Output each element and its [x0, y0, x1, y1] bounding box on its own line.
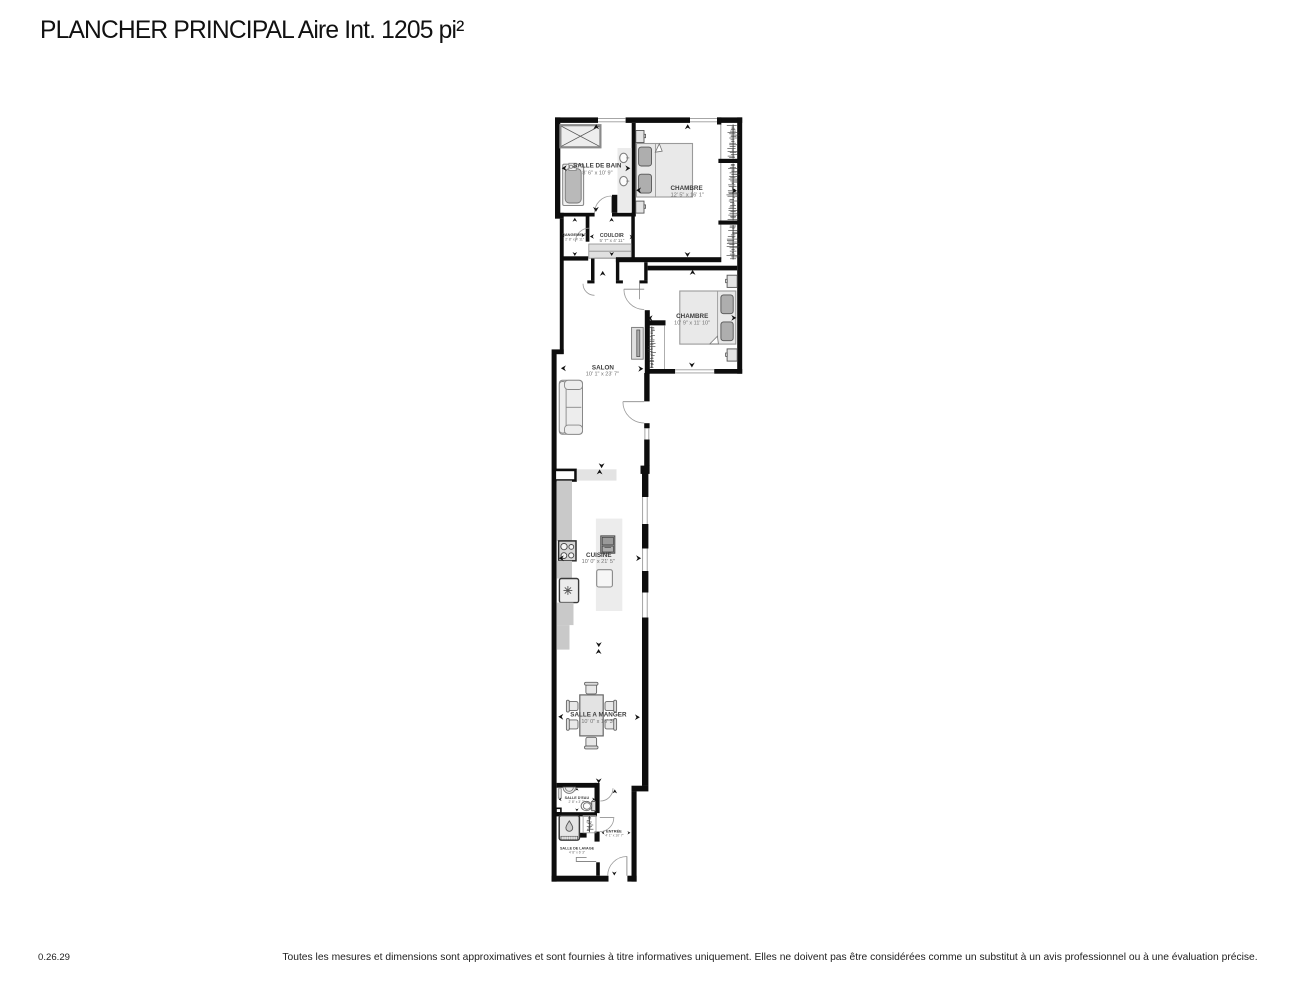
svg-text:5' 7" x 4' 11": 5' 7" x 4' 11" [599, 238, 624, 243]
svg-text:8' 6" x 10' 9": 8' 6" x 10' 9" [582, 171, 612, 177]
svg-text:SALON: SALON [592, 365, 614, 372]
svg-text:CHAMBRE: CHAMBRE [676, 313, 708, 320]
svg-text:CHAMBRE: CHAMBRE [671, 185, 703, 192]
svg-text:4' 1" x 10' 7": 4' 1" x 10' 7" [605, 833, 624, 837]
svg-text:SALLE A MANGER: SALLE A MANGER [570, 712, 627, 719]
svg-text:10' 1" x 23' 7": 10' 1" x 23' 7" [586, 372, 619, 378]
svg-text:SALLE DE BAIN: SALLE DE BAIN [573, 163, 622, 170]
svg-text:10' 0" x 21' 5": 10' 0" x 21' 5" [582, 559, 615, 565]
svg-text:CUISINE: CUISINE [586, 552, 612, 559]
svg-text:10' 0" x 16' 3": 10' 0" x 16' 3" [581, 719, 614, 725]
svg-text:2' 8" x 4' 11": 2' 8" x 4' 11" [565, 237, 585, 241]
svg-text:2' 8" x 3' 2": 2' 8" x 3' 2" [568, 800, 585, 804]
svg-text:4' 8" x 6' 3": 4' 8" x 6' 3" [569, 850, 586, 854]
svg-text:10' 9" x 11' 10": 10' 9" x 11' 10" [674, 321, 710, 327]
svg-text:12' 5" x 16' 1": 12' 5" x 16' 1" [671, 193, 704, 199]
